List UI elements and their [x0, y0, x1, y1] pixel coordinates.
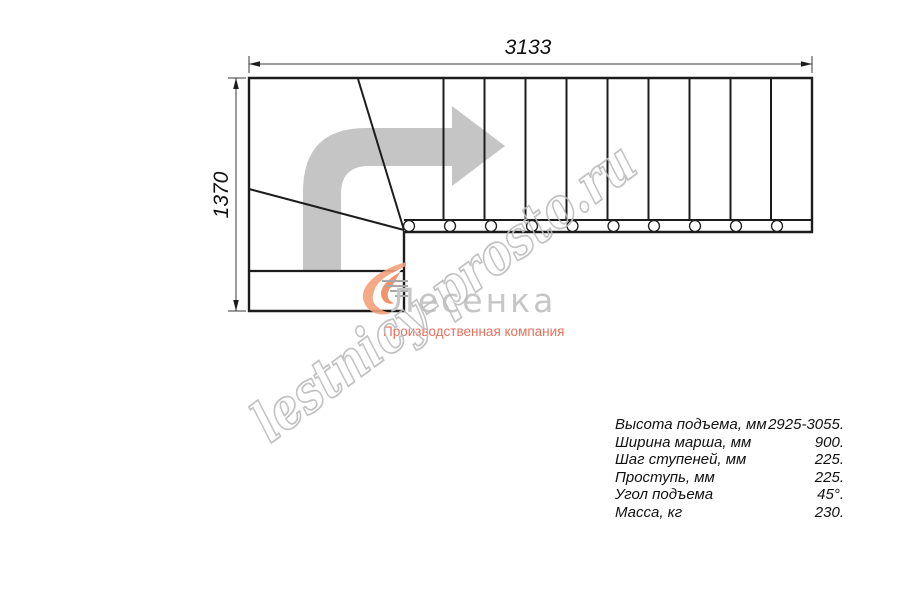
- spec-value: 230.: [815, 504, 844, 522]
- spec-row: Масса, кг 230.: [615, 504, 844, 522]
- watermark-text: lestnicy-prosto.ru: [239, 129, 648, 455]
- spec-list: Высота подъема, мм 2925-3055. Ширина мар…: [615, 416, 844, 522]
- spec-value: 45°.: [817, 486, 844, 504]
- spec-row: Шаг ступеней, мм 225.: [615, 451, 844, 469]
- spec-label: Высота подъема, мм: [615, 416, 767, 434]
- spec-value: 2925-3055.: [768, 416, 844, 434]
- spec-row: Высота подъема, мм 2925-3055.: [615, 416, 844, 434]
- spec-row: Ширина марша, мм 900.: [615, 434, 844, 452]
- spec-label: Угол подъема: [615, 486, 713, 504]
- spec-value: 225.: [815, 469, 844, 487]
- spec-value: 225.: [815, 451, 844, 469]
- spec-label: Масса, кг: [615, 504, 682, 522]
- spec-label: Ширина марша, мм: [615, 434, 751, 452]
- spec-row: Угол подъема 45°.: [615, 486, 844, 504]
- stair-drawing-page: 3133 1370 Лесенка Производственная компа…: [0, 0, 900, 600]
- spec-label: Шаг ступеней, мм: [615, 451, 746, 469]
- spec-row: Проступь, мм 225.: [615, 469, 844, 487]
- spec-value: 900.: [815, 434, 844, 452]
- spec-label: Проступь, мм: [615, 469, 715, 487]
